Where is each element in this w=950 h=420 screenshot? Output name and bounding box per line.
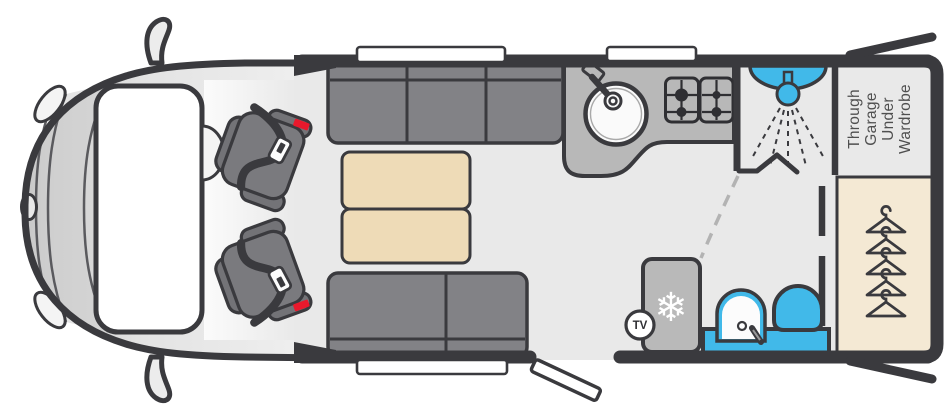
windscreen: [96, 86, 202, 332]
table: [342, 152, 470, 263]
fridge: ❄: [643, 259, 700, 352]
entry-door-open: [531, 359, 602, 401]
window: [357, 47, 505, 62]
garage-label-line: Wardrobe: [897, 84, 914, 154]
washbasin-icon: [717, 290, 765, 342]
sofa-bottom: [328, 273, 527, 357]
tv-label: TV: [633, 320, 648, 332]
van-cab: [22, 19, 335, 400]
window: [607, 47, 696, 61]
tv-badge: TV: [626, 311, 654, 339]
toilet-icon: [774, 286, 822, 330]
garage-door-open-top: [850, 37, 932, 55]
wing-mirror-icon: [147, 357, 170, 401]
floorplan-canvas: Through Garage Under Wardrobe: [0, 0, 950, 420]
garage-label-line: Under: [880, 97, 897, 141]
wardrobe: [837, 177, 932, 353]
snowflake-icon: ❄: [654, 285, 688, 331]
sofa-top: [328, 59, 563, 143]
wing-mirror-icon: [147, 19, 170, 63]
garage-label-line: Through: [846, 89, 863, 149]
motorhome-floorplan: Through Garage Under Wardrobe: [0, 0, 950, 420]
garage-door-open-bottom: [850, 361, 932, 379]
garage-label-line: Garage: [863, 92, 880, 146]
window: [357, 360, 507, 374]
